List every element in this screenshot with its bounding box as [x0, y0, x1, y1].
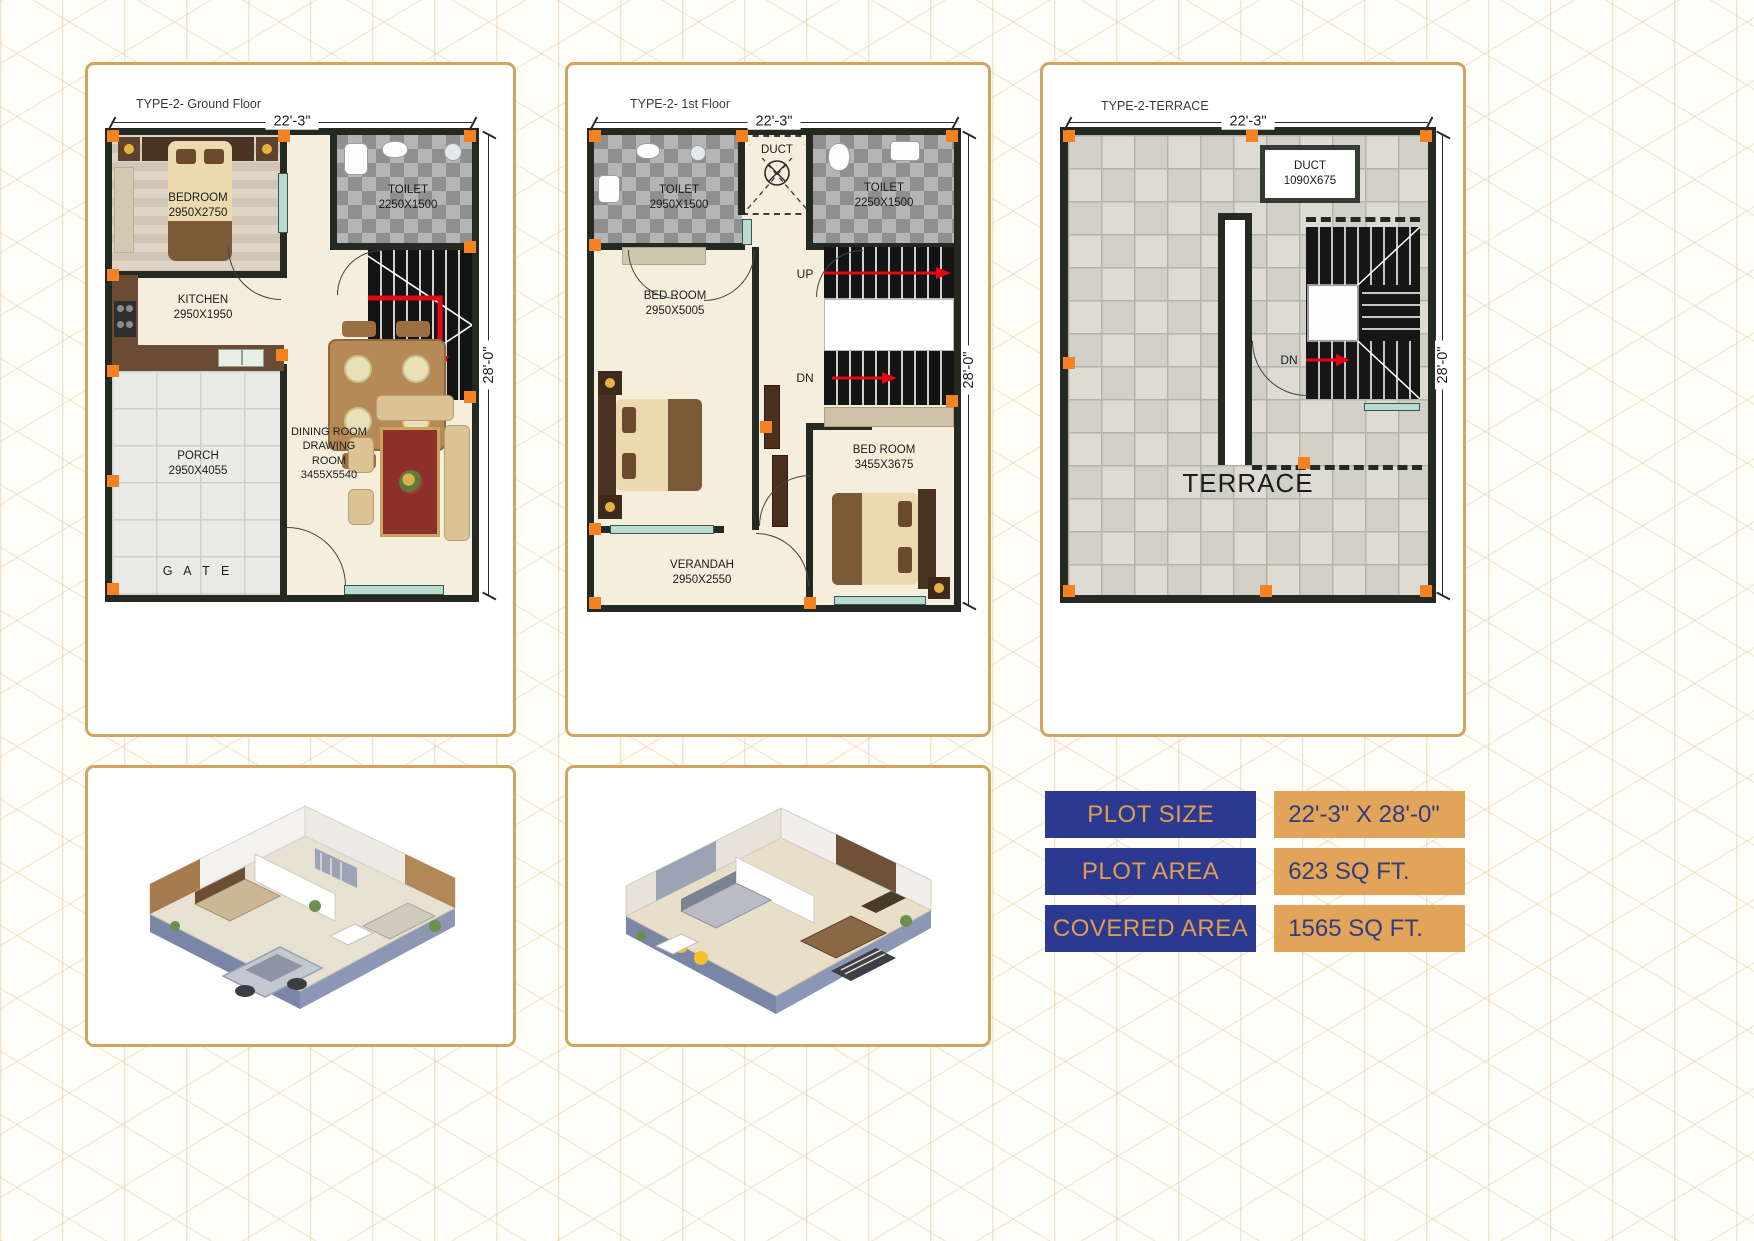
toilet-seat-icon: [636, 143, 660, 159]
terrace-title: TYPE-2-TERRACE: [1101, 99, 1209, 113]
room-name: DRAWING: [286, 439, 372, 453]
room-name: DINING ROOM: [286, 425, 372, 439]
room-size: 2250X1500: [834, 196, 934, 211]
dashed-wall: [1306, 217, 1420, 222]
sink-divider: [241, 350, 243, 365]
room-name: ROOM: [286, 454, 372, 468]
first-width-dimension: 22'-3": [594, 122, 954, 123]
terrace-plan: DUCT 1090X675: [1068, 135, 1428, 595]
spec-row-plot-size: PLOT SIZE 22'-3" X 28'-0": [1045, 791, 1465, 838]
window: [610, 525, 714, 534]
bed-pillow: [204, 149, 224, 164]
terrace-card: TYPE-2-TERRACE 22'-3" 28'-0" DUCT 1090X6…: [1040, 62, 1466, 737]
column-marker: [1063, 130, 1075, 142]
first-floor-card: TYPE-2- 1st Floor 22'-3" 28'-0" TOILET 2…: [565, 62, 991, 737]
first-toilet-left-label: TOILET 2950X1500: [624, 183, 734, 213]
bed-nightstand: [256, 137, 278, 161]
column-marker: [464, 391, 476, 403]
window: [1364, 403, 1420, 411]
first-duct: DUCT: [742, 135, 812, 215]
ground-floor-3d-card: [85, 765, 516, 1047]
room-name: BEDROOM: [136, 191, 260, 206]
burner-icon: [126, 305, 133, 312]
wall: [752, 247, 759, 530]
room-size: 3455X3675: [828, 458, 940, 473]
room-name: DUCT: [750, 143, 804, 158]
dn-text: DN: [1274, 353, 1304, 369]
terrace-width-dimension-label: 22'-3": [1222, 114, 1275, 130]
column-marker: [589, 597, 601, 609]
wall: [806, 135, 813, 247]
column-marker: [760, 421, 772, 433]
first-width-dimension-label: 22'-3": [748, 114, 801, 130]
burner-icon: [126, 321, 133, 328]
first-floor-3d-render: [586, 786, 966, 1022]
burner-icon: [117, 305, 124, 312]
lamp-icon: [605, 378, 615, 388]
bed-headboard: [918, 489, 936, 589]
wall: [334, 243, 472, 250]
spec-row-covered-area: COVERED AREA 1565 SQ FT.: [1045, 905, 1465, 952]
closet: [114, 167, 134, 253]
room-size: 2950X2550: [642, 573, 762, 588]
bed-pillow: [176, 149, 196, 164]
room-name: DUCT: [1265, 159, 1355, 174]
washbasin-icon: [344, 143, 368, 175]
column-marker: [589, 130, 601, 142]
wall: [280, 371, 287, 595]
column-marker: [107, 583, 119, 595]
room-size: 2950X1500: [624, 198, 734, 213]
wardrobe: [764, 385, 780, 449]
plot-size-value: 22'-3" X 28'-0": [1274, 791, 1465, 838]
armchair: [348, 489, 374, 525]
lamp-icon: [934, 583, 944, 593]
column-marker: [1420, 130, 1432, 142]
first-floor-plan: TOILET 2950X1500 DUCT TOILET 2250X150: [594, 135, 954, 605]
column-marker: [107, 269, 119, 281]
specs-table: PLOT SIZE 22'-3" X 28'-0" PLOT AREA 623 …: [1045, 791, 1465, 962]
column-marker: [107, 130, 119, 142]
gate-label: G A T E: [138, 563, 258, 579]
bed-nightstand: [928, 577, 950, 599]
plot-area-label: PLOT AREA: [1045, 848, 1256, 895]
bed: [598, 395, 702, 495]
sofa: [376, 395, 454, 421]
ground-porch-label: PORCH 2950X4055: [138, 449, 258, 479]
column-marker: [1298, 457, 1310, 469]
terrace-duct: DUCT 1090X675: [1260, 145, 1360, 203]
room-size: 1090X675: [1265, 174, 1355, 189]
column-marker: [804, 597, 816, 609]
terrace-duct-label: DUCT 1090X675: [1265, 159, 1355, 189]
washbasin-icon: [598, 175, 620, 203]
lamp-icon: [124, 144, 134, 154]
dining-chair: [396, 321, 430, 337]
terrace-dn-label: DN: [1274, 353, 1304, 369]
column-marker: [736, 130, 748, 142]
column-marker: [464, 241, 476, 253]
dining-chair: [342, 321, 376, 337]
column-marker: [1260, 585, 1272, 597]
washbasin-icon: [890, 141, 920, 161]
first-floor-3d-card: [565, 765, 991, 1047]
terrace-staircase: [1306, 227, 1420, 399]
sink-icon: [444, 143, 462, 161]
ground-porch-room: PORCH 2950X4055 G A T E: [112, 371, 284, 595]
covered-area-label: COVERED AREA: [1045, 905, 1256, 952]
bed-blanket: [832, 493, 862, 585]
dn-label: DN: [790, 371, 820, 387]
bed: [832, 489, 936, 589]
room-name: BED ROOM: [620, 289, 730, 304]
room-name: TOILET: [624, 183, 734, 198]
bed-nightstand: [598, 371, 622, 395]
first-toilet-right-room: TOILET 2250X1500: [812, 135, 954, 247]
column-marker: [1420, 585, 1432, 597]
up-text: UP: [790, 267, 820, 283]
column-marker: [589, 239, 601, 251]
ground-height-dimension-label: 28'-0": [481, 341, 497, 390]
room-size: 2950X4055: [138, 464, 258, 479]
bed-pillow: [622, 407, 636, 433]
room-name: PORCH: [138, 449, 258, 464]
stove-icon: [114, 301, 136, 337]
bed-headboard: [598, 395, 616, 495]
stair-shaft: [1218, 213, 1252, 465]
kitchen-sink-icon: [218, 349, 264, 367]
ground-kitchen-label: KITCHEN 2950X1950: [148, 293, 258, 323]
covered-area-value: 1565 SQ FT.: [1274, 905, 1465, 952]
sofa: [444, 425, 470, 541]
brochure-page: { "colors":{"card_border":"#d1a55f","wal…: [0, 0, 1754, 1241]
ground-floor-3d-render: [105, 786, 490, 1022]
first-bedroom-right-label: BED ROOM 3455X3675: [828, 443, 940, 473]
gate-text: G A T E: [138, 563, 258, 579]
room-name: KITCHEN: [148, 293, 258, 308]
sink-icon: [690, 145, 706, 161]
lamp-icon: [262, 144, 272, 154]
first-duct-label: DUCT: [750, 143, 804, 158]
room-name: TERRACE: [1168, 467, 1328, 501]
room-name: TOILET: [358, 183, 458, 198]
room-size: 2250X1500: [358, 198, 458, 213]
terrace-area-label: TERRACE: [1168, 467, 1328, 501]
room-size: 2950X1950: [148, 308, 258, 323]
stair-landing-shelf: [824, 407, 954, 427]
first-toilet-right-label: TOILET 2250X1500: [834, 181, 934, 211]
ground-height-dimension: 28'-0": [488, 135, 489, 595]
burner-icon: [117, 321, 124, 328]
bed-blanket: [168, 221, 232, 261]
window: [834, 596, 926, 605]
terrace-height-dimension: 28'-0": [1442, 135, 1443, 595]
column-marker: [946, 395, 958, 407]
ground-floor-card: TYPE-2- Ground Floor 22'-3" 28'-0" BEDRO…: [85, 62, 516, 737]
terrace-height-dimension-label: 28'-0": [1435, 341, 1451, 390]
ground-toilet-label: TOILET 2250X1500: [358, 183, 458, 213]
room-name: TOILET: [834, 181, 934, 196]
first-bedroom-left-label: BED ROOM 2950X5005: [620, 289, 730, 319]
column-marker: [107, 365, 119, 377]
first-verandah-label: VERANDAH 2950X2550: [642, 558, 762, 588]
column-marker: [1063, 357, 1075, 369]
lamp-icon: [605, 502, 615, 512]
ground-floor-plan: BEDROOM 2950X2750 TOILET 2250X1500: [112, 135, 472, 595]
column-marker: [278, 130, 290, 142]
first-toilet-left-room: TOILET 2950X1500: [594, 135, 742, 247]
dn-text: DN: [790, 371, 820, 387]
room-size: 3455X5540: [286, 468, 372, 482]
column-marker: [589, 523, 601, 535]
ground-dining-label: DINING ROOM DRAWING ROOM 3455X5540: [286, 425, 372, 482]
flower-centerpiece-icon: [399, 470, 423, 494]
room-name: BED ROOM: [828, 443, 940, 458]
column-marker: [1246, 130, 1258, 142]
bed-nightstand: [118, 137, 140, 161]
column-marker: [946, 130, 958, 142]
ground-width-dimension-label: 22'-3": [266, 114, 319, 130]
terrace-width-dimension: 22'-3": [1068, 122, 1428, 123]
bed-pillow: [898, 501, 912, 527]
room-size: 2950X2750: [136, 206, 260, 221]
ground-width-dimension: 22'-3": [112, 122, 472, 123]
first-height-dimension-label: 28'-0": [961, 346, 977, 395]
first-bedroom-right-room: BED ROOM 3455X3675: [812, 427, 954, 605]
up-label: UP: [790, 267, 820, 283]
toilet-seat-icon: [382, 141, 408, 158]
bed-pillow: [622, 453, 636, 479]
ground-floor-title: TYPE-2- Ground Floor: [136, 97, 261, 111]
ground-toilet-room: TOILET 2250X1500: [334, 135, 472, 247]
room-size: 2950X5005: [620, 304, 730, 319]
column-marker: [1063, 585, 1075, 597]
ground-bedroom-label: BEDROOM 2950X2750: [136, 191, 260, 221]
toilet-seat-icon: [828, 143, 850, 171]
plate-icon: [402, 355, 430, 383]
first-height-dimension: 28'-0": [968, 135, 969, 605]
spec-row-plot-area: PLOT AREA 623 SQ FT.: [1045, 848, 1465, 895]
carpet: [380, 427, 440, 537]
plot-area-value: 623 SQ FT.: [1274, 848, 1465, 895]
bed-nightstand: [598, 495, 622, 519]
bed-pillow: [898, 547, 912, 573]
plate-icon: [344, 355, 372, 383]
wall: [738, 135, 745, 215]
window: [742, 219, 752, 245]
first-floor-title: TYPE-2- 1st Floor: [630, 97, 730, 111]
wall: [330, 135, 337, 250]
column-marker: [464, 130, 476, 142]
plot-size-label: PLOT SIZE: [1045, 791, 1256, 838]
room-name: VERANDAH: [642, 558, 762, 573]
column-marker: [276, 349, 288, 361]
column-marker: [107, 475, 119, 487]
window: [278, 173, 288, 233]
window: [344, 585, 444, 595]
bed-blanket: [668, 399, 702, 491]
door-arc: [759, 475, 810, 526]
